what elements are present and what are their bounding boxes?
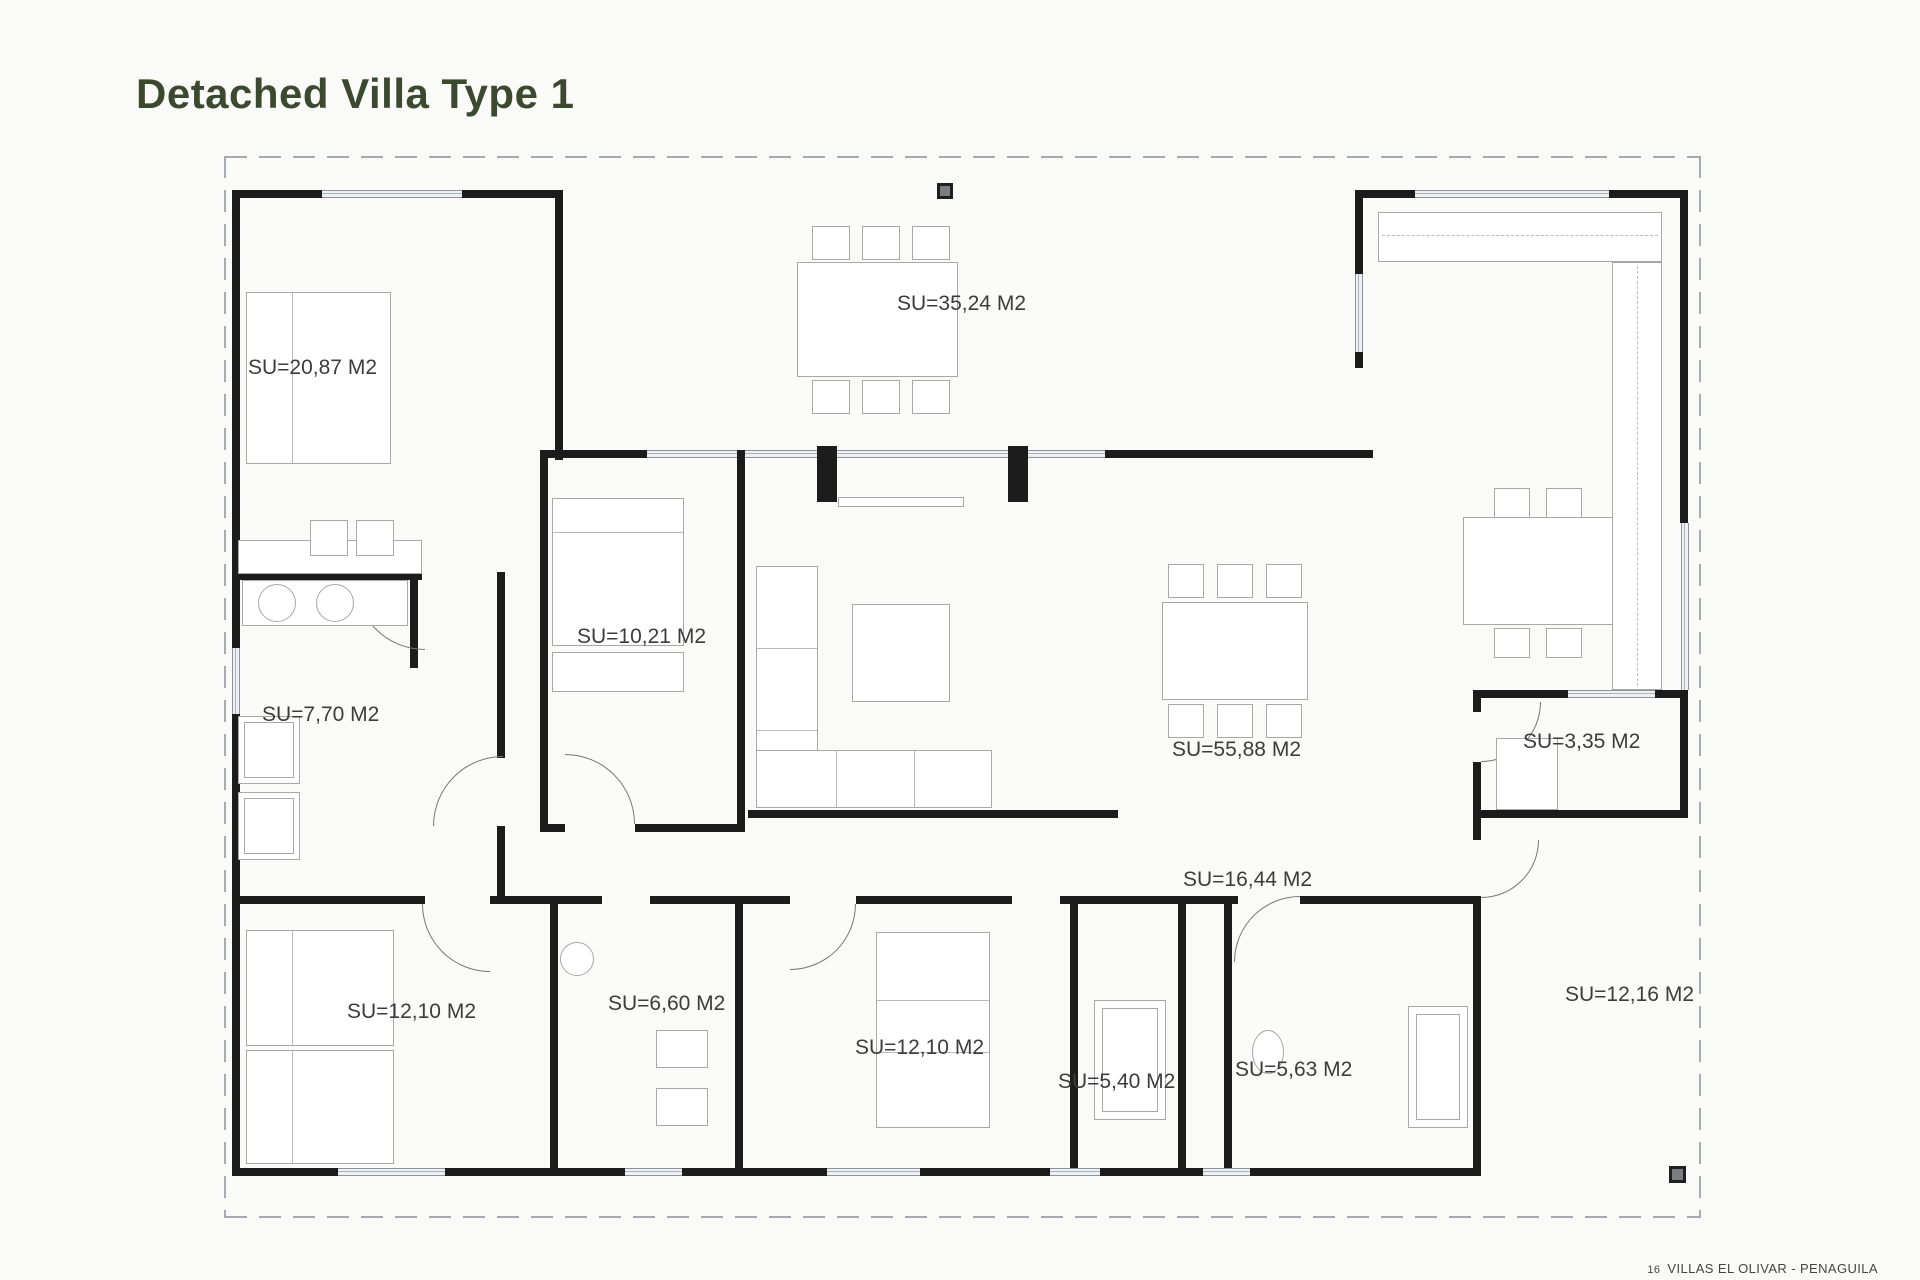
- wall-segment: [232, 1168, 338, 1176]
- plot-boundary-bottom: [225, 1216, 1701, 1218]
- chair: [1217, 564, 1253, 598]
- room-area-label-living-room: SU=55,88 M2: [1172, 738, 1301, 762]
- chair: [1266, 564, 1302, 598]
- wall-segment: [550, 896, 558, 1168]
- wall-segment: [1473, 690, 1568, 698]
- room-area-label-bedroom-2: SU=10,21 M2: [577, 625, 706, 649]
- plot-boundary-left: [224, 156, 226, 1218]
- wall-segment: [1178, 896, 1186, 1168]
- wall-segment: [635, 824, 745, 832]
- door-jamb: [817, 446, 837, 502]
- chair: [912, 226, 950, 260]
- window: [322, 190, 464, 198]
- wall-segment: [462, 190, 563, 198]
- door-swing: [433, 756, 503, 826]
- sofa-cushion-line: [757, 730, 817, 731]
- chair: [1168, 564, 1204, 598]
- room-area-label-bathroom-1: SU=7,70 M2: [262, 703, 379, 727]
- wall-segment: [920, 1168, 1050, 1176]
- page-title: Detached Villa Type 1: [136, 70, 574, 118]
- room-area-label-bedroom-1: SU=20,87 M2: [248, 356, 377, 380]
- bed-pillow-line: [292, 1051, 293, 1163]
- bath-fixture: [656, 1088, 708, 1126]
- shower-tray-inner: [1416, 1014, 1460, 1120]
- wall-segment: [547, 450, 647, 458]
- window: [1203, 1168, 1250, 1176]
- toilet-inner: [244, 798, 294, 854]
- footer-page-number: 16: [1647, 1264, 1660, 1276]
- dresser-unit: [356, 520, 394, 556]
- sofa-cushion-line: [757, 648, 817, 649]
- sofa: [756, 750, 992, 808]
- chair: [862, 226, 900, 260]
- bed: [246, 1050, 394, 1164]
- chair: [812, 226, 850, 260]
- wall-segment: [735, 896, 743, 1168]
- window: [1415, 190, 1609, 198]
- window: [1681, 523, 1689, 690]
- wall-segment: [540, 450, 548, 832]
- chair: [1546, 488, 1582, 518]
- bed: [876, 932, 990, 1128]
- shower-tray-inner: [1102, 1008, 1158, 1112]
- room-area-label-bathroom-3: SU=5,63 M2: [1235, 1058, 1352, 1082]
- wall-segment: [540, 824, 565, 832]
- room-area-label-toilet: SU=5,40 M2: [1058, 1070, 1175, 1094]
- wall-segment: [1105, 450, 1373, 458]
- chair: [862, 380, 900, 414]
- wall-segment: [1473, 896, 1481, 1168]
- door-swing: [565, 754, 635, 824]
- wall-segment: [1355, 352, 1363, 368]
- plot-boundary-right: [1699, 156, 1701, 1218]
- bed-pillow-line: [877, 1000, 989, 1001]
- footer-project-name: VILLAS EL OLIVAR - PENAGUILA: [1667, 1261, 1878, 1276]
- wall-segment: [1609, 190, 1688, 198]
- wall-segment: [1355, 190, 1363, 274]
- dining-table: [797, 262, 958, 377]
- chair: [812, 380, 850, 414]
- bath-fixture: [656, 1030, 708, 1068]
- room-area-label-bedroom-4: SU=12,10 M2: [855, 1036, 984, 1060]
- wall-segment: [650, 896, 790, 904]
- room-area-label-porch: SU=35,24 M2: [897, 292, 1026, 316]
- door-swing: [1234, 896, 1300, 962]
- window: [1568, 690, 1655, 698]
- shower-tray-inner: [244, 722, 294, 778]
- pillar: [937, 183, 953, 199]
- dining-table: [1162, 602, 1308, 700]
- room-area-label-terrace: SU=12,16 M2: [1565, 983, 1694, 1007]
- upper-cabinet-line: [1637, 266, 1638, 686]
- window: [232, 648, 240, 714]
- bed: [246, 930, 394, 1046]
- chair: [1546, 628, 1582, 658]
- chair: [1217, 704, 1253, 738]
- wall-segment: [1300, 896, 1481, 904]
- footer: 16VILLAS EL OLIVAR - PENAGUILA: [1647, 1261, 1878, 1276]
- wall-segment: [1473, 698, 1481, 712]
- wall-segment: [1680, 690, 1688, 818]
- pillar: [1669, 1166, 1686, 1183]
- sink: [316, 584, 354, 622]
- wall-segment: [1070, 896, 1078, 1168]
- chair: [1494, 488, 1530, 518]
- wall-segment: [490, 896, 602, 904]
- plot-boundary-top: [225, 156, 1701, 158]
- chair: [1494, 628, 1530, 658]
- wall-segment: [1060, 896, 1238, 904]
- wall-segment: [497, 572, 505, 758]
- sink: [258, 584, 296, 622]
- wall-segment: [1680, 190, 1688, 523]
- window: [827, 1168, 920, 1176]
- wardrobe: [552, 652, 684, 692]
- dresser-unit: [310, 520, 348, 556]
- chair: [1266, 704, 1302, 738]
- room-area-label-bathroom-2: SU=6,60 M2: [608, 992, 725, 1016]
- window: [338, 1168, 445, 1176]
- wall-segment: [748, 810, 1118, 818]
- wall-segment: [1250, 1168, 1481, 1176]
- room-area-label-pantry: SU=3,35 M2: [1523, 730, 1640, 754]
- bed: [552, 498, 684, 646]
- wall-segment: [1473, 762, 1481, 818]
- door-swing: [790, 904, 856, 970]
- bed-pillow-line: [292, 931, 293, 1045]
- wall-segment: [445, 1168, 625, 1176]
- wall-segment: [497, 826, 505, 902]
- window: [625, 1168, 682, 1176]
- wall-segment: [737, 450, 745, 832]
- wall-segment: [1355, 190, 1415, 198]
- wall-segment: [555, 190, 563, 460]
- kitchen-counter: [1378, 212, 1662, 262]
- wall-segment: [232, 896, 425, 904]
- wall-segment: [856, 896, 1012, 904]
- window: [1050, 1168, 1100, 1176]
- door-swing: [1481, 840, 1539, 898]
- window: [1355, 274, 1363, 352]
- tv-unit: [838, 497, 964, 507]
- coffee-table: [852, 604, 950, 702]
- sink: [560, 942, 594, 976]
- chair: [1168, 704, 1204, 738]
- wall-segment: [1224, 896, 1232, 1168]
- door-jamb: [1008, 446, 1028, 502]
- wall-segment: [232, 190, 328, 198]
- chair: [912, 380, 950, 414]
- sofa-cushion-line: [914, 751, 915, 807]
- page: Detached Villa Type 1: [0, 0, 1920, 1280]
- bed-pillow-line: [553, 532, 683, 533]
- window-sliding-door: [647, 450, 1105, 458]
- wall-segment: [1100, 1168, 1203, 1176]
- upper-cabinet-line: [1382, 235, 1658, 236]
- wall-segment: [682, 1168, 827, 1176]
- wall-segment: [1473, 810, 1688, 818]
- sofa-cushion-line: [836, 751, 837, 807]
- door-swing: [422, 904, 490, 972]
- kitchen-table: [1463, 517, 1613, 625]
- room-area-label-bedroom-3: SU=12,10 M2: [347, 1000, 476, 1024]
- room-area-label-hall: SU=16,44 M2: [1183, 868, 1312, 892]
